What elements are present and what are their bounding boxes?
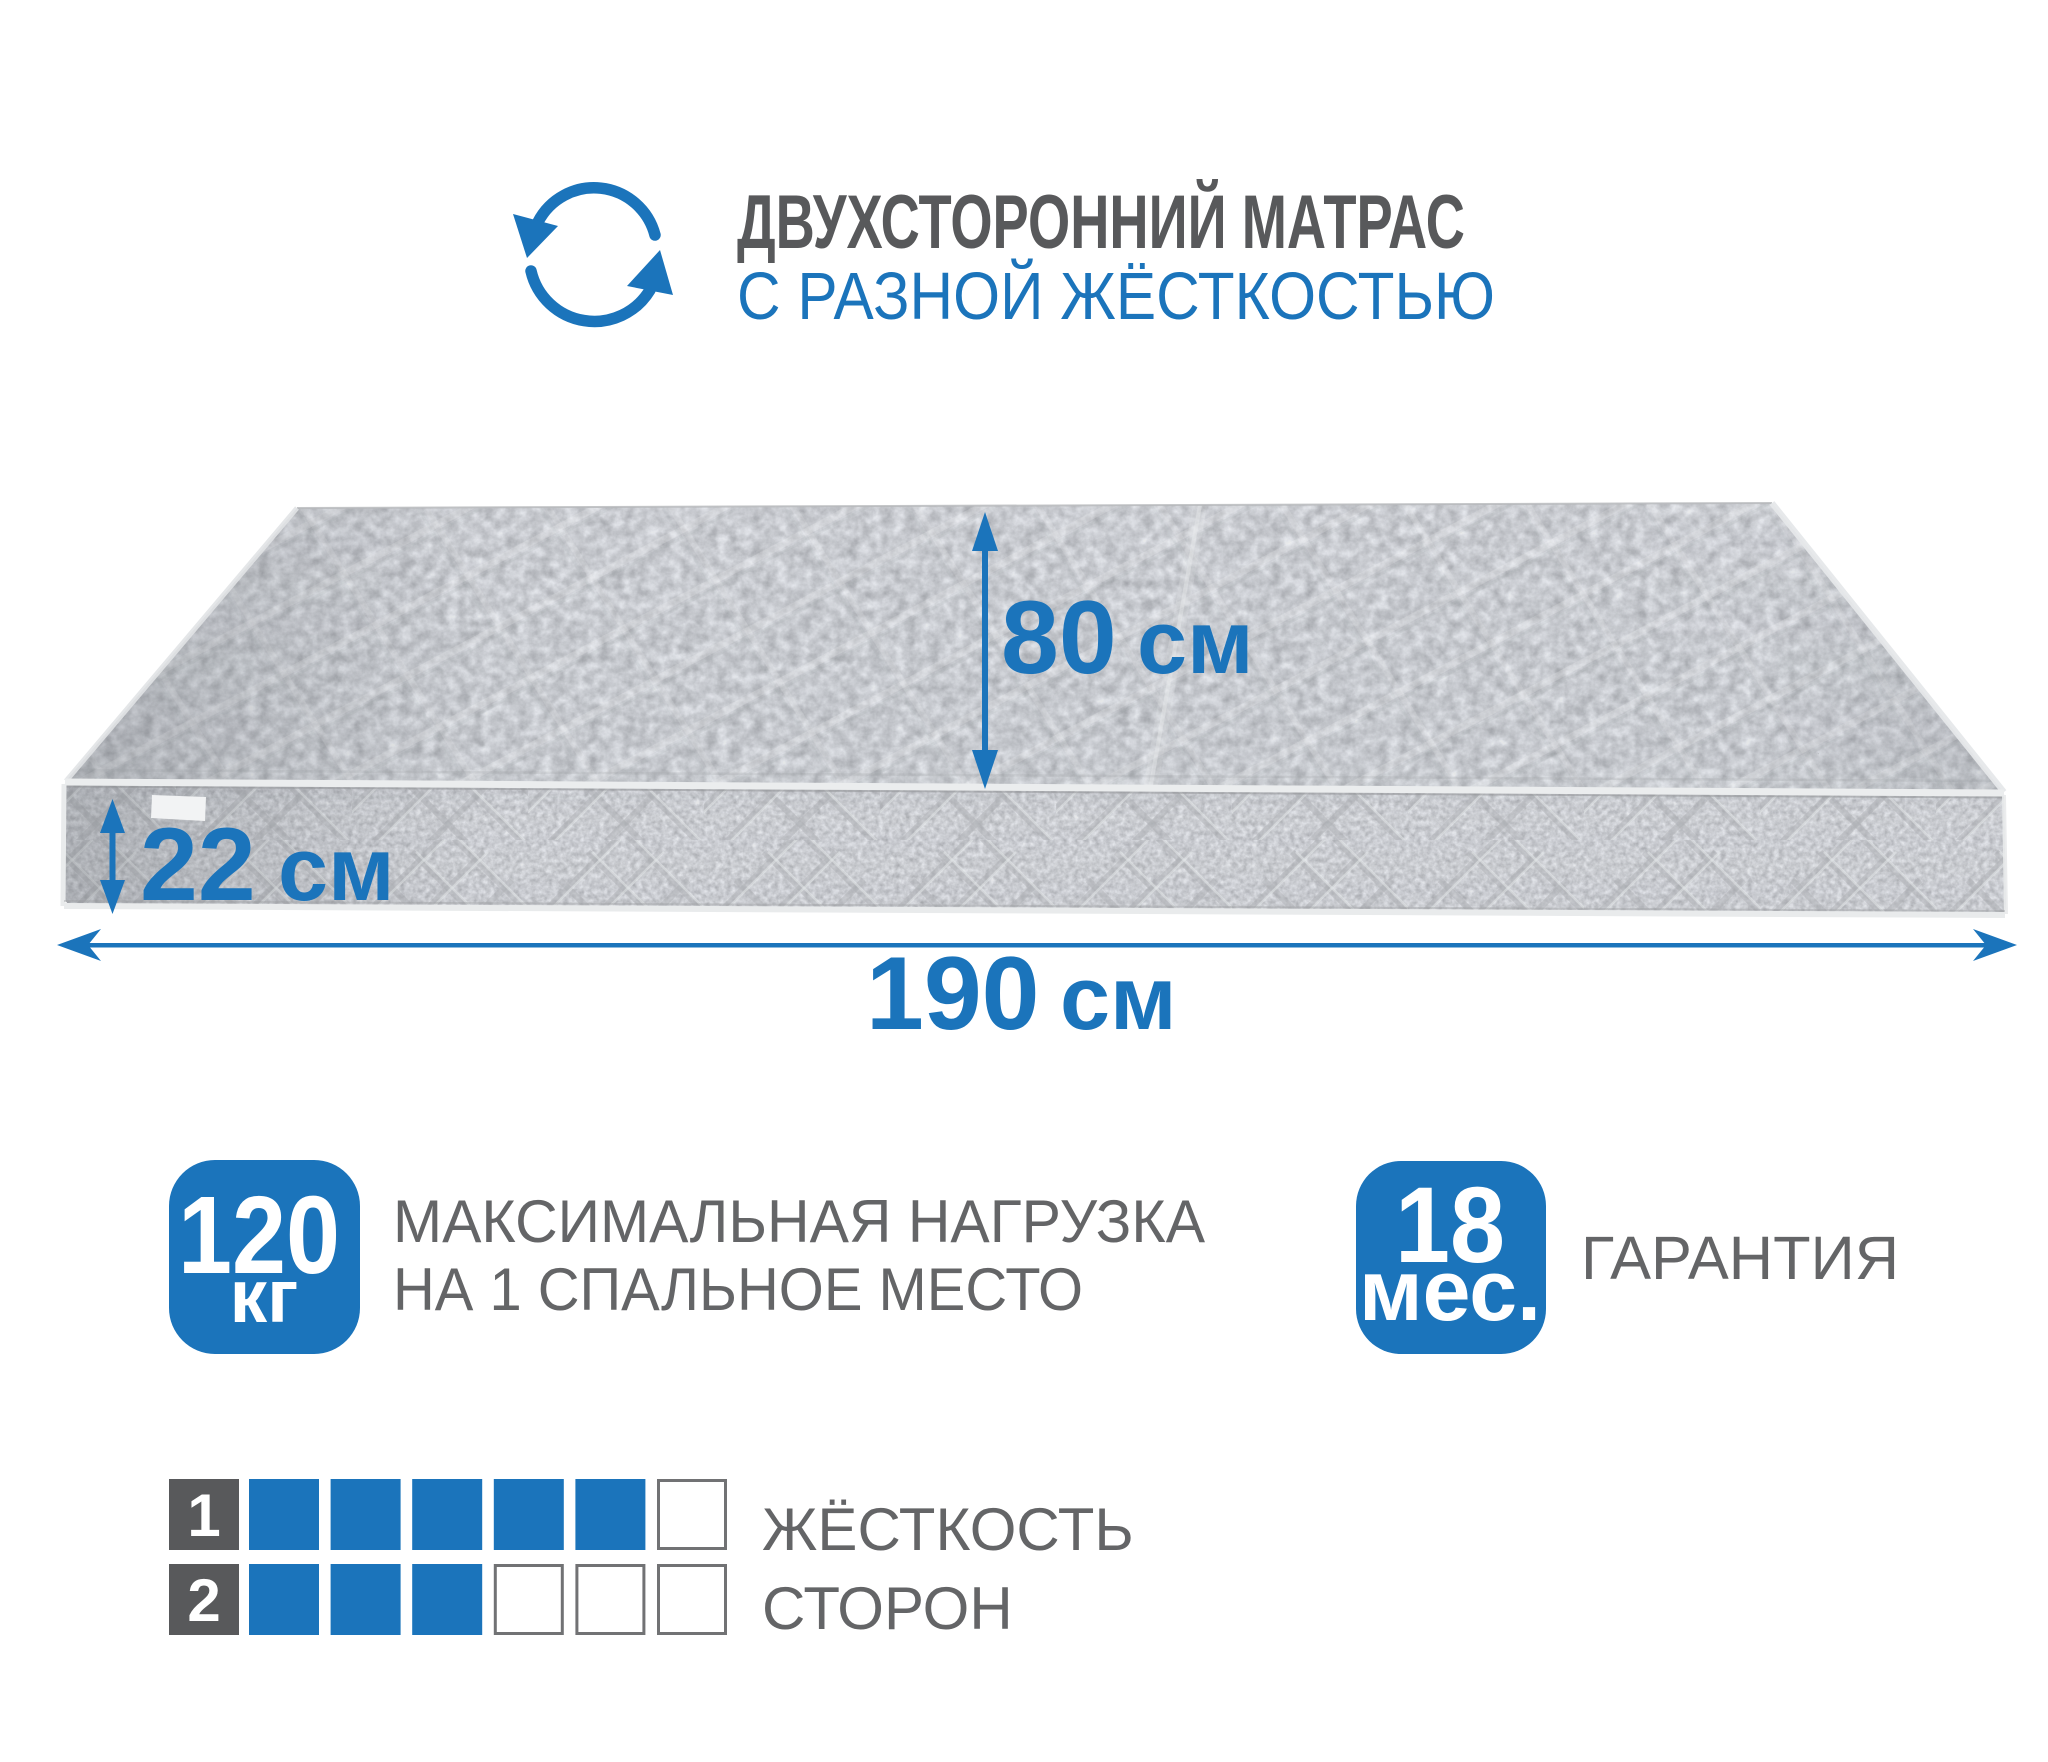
svg-text:80: 80 [1001, 580, 1117, 696]
svg-text:мес.: мес. [1359, 1243, 1541, 1339]
svg-text:МАКСИМАЛЬНАЯ НАГРУЗКА: МАКСИМАЛЬНАЯ НАГРУЗКА [393, 1188, 1205, 1255]
svg-text:22: 22 [140, 807, 256, 923]
svg-text:С РАЗНОЙ ЖЁСТКОСТЬЮ: С РАЗНОЙ ЖЁСТКОСТЬЮ [737, 258, 1495, 334]
svg-text:НА 1 СПАЛЬНОЕ МЕСТО: НА 1 СПАЛЬНОЕ МЕСТО [393, 1256, 1083, 1323]
svg-text:ЖЁСТКОСТЬ: ЖЁСТКОСТЬ [762, 1496, 1134, 1563]
svg-text:см: см [1137, 593, 1254, 693]
svg-text:см: см [278, 820, 395, 920]
svg-text:ГАРАНТИЯ: ГАРАНТИЯ [1581, 1224, 1899, 1292]
svg-text:190: 190 [866, 936, 1040, 1052]
svg-text:кг: кг [230, 1254, 299, 1338]
svg-text:см: см [1060, 949, 1177, 1049]
svg-text:2: 2 [187, 1567, 220, 1634]
svg-text:ДВУХСТОРОННИЙ МАТРАС: ДВУХСТОРОННИЙ МАТРАС [737, 179, 1465, 265]
svg-text:СТОРОН: СТОРОН [762, 1575, 1013, 1642]
svg-text:1: 1 [187, 1482, 220, 1549]
